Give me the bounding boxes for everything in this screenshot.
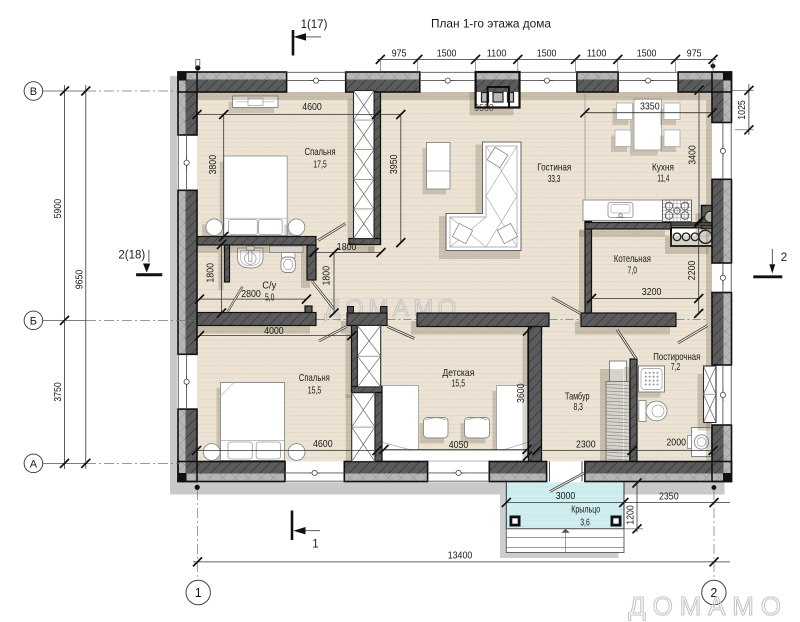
svg-text:15,5: 15,5 <box>308 385 322 397</box>
svg-text:1025: 1025 <box>736 100 748 120</box>
svg-text:2000: 2000 <box>666 437 686 449</box>
svg-text:1100: 1100 <box>487 47 507 59</box>
svg-text:17,5: 17,5 <box>313 159 327 171</box>
svg-text:7,2: 7,2 <box>671 361 681 373</box>
svg-text:Котельная: Котельная <box>614 253 651 265</box>
svg-text:Б: Б <box>30 315 37 327</box>
svg-text:3800: 3800 <box>207 155 219 175</box>
svg-text:1800: 1800 <box>321 266 333 286</box>
svg-text:Спальня: Спальня <box>305 146 336 158</box>
svg-text:7,0: 7,0 <box>628 264 638 276</box>
svg-text:3400: 3400 <box>686 145 698 165</box>
svg-text:15,5: 15,5 <box>452 377 466 389</box>
svg-text:2: 2 <box>781 252 787 264</box>
svg-text:2800: 2800 <box>241 288 261 300</box>
svg-text:1500: 1500 <box>637 47 657 59</box>
svg-text:Крыльцо: Крыльцо <box>571 504 600 516</box>
svg-text:9650: 9650 <box>73 270 85 290</box>
svg-text:4050: 4050 <box>449 439 469 451</box>
svg-text:1500: 1500 <box>537 47 557 59</box>
svg-text:2300: 2300 <box>576 438 596 450</box>
svg-text:5,0: 5,0 <box>265 292 275 304</box>
svg-text:3350: 3350 <box>640 100 660 112</box>
svg-text:3200: 3200 <box>642 286 662 298</box>
svg-text:2(18): 2(18) <box>118 250 145 262</box>
svg-text:А: А <box>30 458 38 470</box>
svg-text:8,3: 8,3 <box>573 401 583 413</box>
svg-text:975: 975 <box>687 47 702 59</box>
svg-text:11,4: 11,4 <box>657 172 669 184</box>
svg-text:3000: 3000 <box>556 490 576 502</box>
svg-text:33,3: 33,3 <box>548 173 561 185</box>
svg-text:4600: 4600 <box>313 438 333 450</box>
svg-text:2350: 2350 <box>659 491 679 503</box>
svg-text:В: В <box>30 86 37 98</box>
svg-text:3750: 3750 <box>52 382 64 402</box>
svg-text:С/у: С/у <box>262 280 277 292</box>
svg-text:1: 1 <box>312 539 318 551</box>
svg-text:Спальня: Спальня <box>299 372 330 384</box>
svg-text:1800: 1800 <box>205 263 217 283</box>
svg-text:1200: 1200 <box>624 505 636 525</box>
svg-text:1800: 1800 <box>337 241 357 253</box>
svg-text:1: 1 <box>195 586 202 600</box>
svg-text:3950: 3950 <box>388 154 400 174</box>
svg-text:1500: 1500 <box>437 47 457 59</box>
svg-text:13400: 13400 <box>448 549 473 561</box>
svg-text:ДОМАМО: ДОМАМО <box>628 591 788 621</box>
svg-text:План 1-го этажа дома: План 1-го этажа дома <box>431 17 551 31</box>
svg-text:Гостиная: Гостиная <box>537 162 571 174</box>
svg-text:3,6: 3,6 <box>580 516 590 528</box>
svg-text:4000: 4000 <box>264 325 284 337</box>
svg-text:975: 975 <box>392 47 407 59</box>
svg-text:3600: 3600 <box>515 383 527 403</box>
svg-text:1100: 1100 <box>587 47 607 59</box>
svg-text:1(17): 1(17) <box>301 19 328 31</box>
svg-text:5900: 5900 <box>52 199 64 219</box>
svg-text:4600: 4600 <box>302 101 322 113</box>
svg-text:2200: 2200 <box>686 261 698 281</box>
